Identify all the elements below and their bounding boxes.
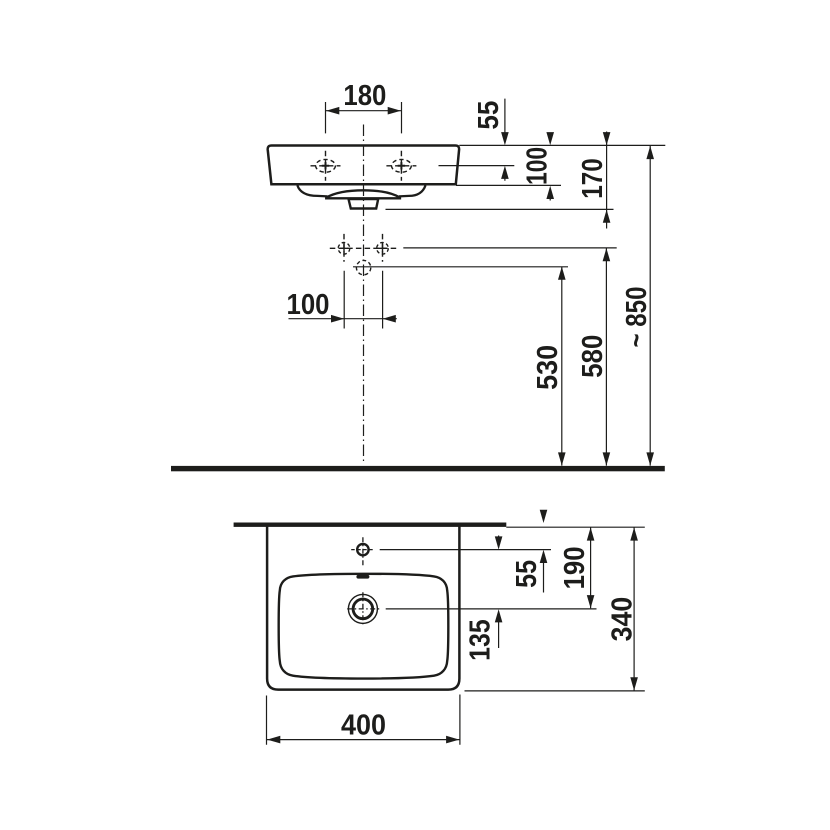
svg-text:100: 100 xyxy=(521,147,553,185)
svg-text:180: 180 xyxy=(343,80,386,112)
svg-text:530: 530 xyxy=(532,345,564,390)
svg-text:580: 580 xyxy=(577,335,609,378)
svg-text:135: 135 xyxy=(464,619,496,661)
svg-text:~ 850: ~ 850 xyxy=(621,287,653,348)
svg-text:170: 170 xyxy=(577,158,609,199)
svg-text:55: 55 xyxy=(511,560,543,588)
svg-text:100: 100 xyxy=(287,289,330,321)
svg-text:340: 340 xyxy=(606,597,638,642)
svg-text:190: 190 xyxy=(559,546,591,589)
svg-text:400: 400 xyxy=(341,709,386,741)
svg-text:55: 55 xyxy=(473,101,505,130)
